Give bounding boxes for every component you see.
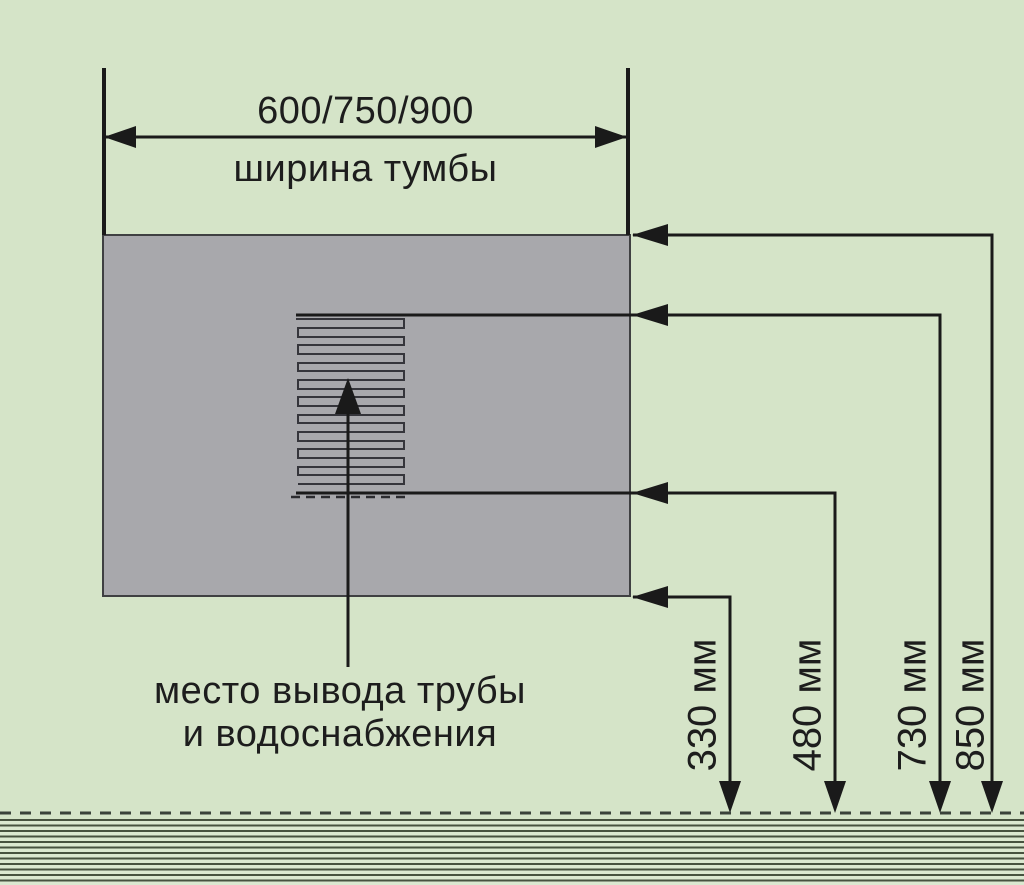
cabinet-width-label: ширина тумбы (103, 148, 628, 191)
dim-label-850: 850 мм (949, 639, 994, 772)
diagram-canvas: 600/750/900 ширина тумбы место вывода тр… (0, 0, 1024, 885)
leader-330-left-arrow-icon (632, 586, 668, 608)
outlet-note: место вывода трубы и водоснабжения (90, 670, 590, 755)
dim-label-330: 330 мм (681, 639, 726, 772)
cabinet-width-values: 600/750/900 (103, 90, 628, 133)
leader-850-left-arrow-icon (632, 224, 668, 246)
outlet-note-line2: и водоснабжения (183, 713, 497, 755)
leader-730-down-arrow-icon (929, 781, 951, 813)
leader-480-down-arrow-icon (824, 781, 846, 813)
outlet-note-line1: место вывода трубы (154, 670, 526, 712)
leader-480-left-arrow-icon (632, 482, 668, 504)
dim-label-730: 730 мм (891, 639, 936, 772)
leader-850-down-arrow-icon (981, 781, 1003, 813)
leader-330-down-arrow-icon (719, 781, 741, 813)
floor-stripes (0, 819, 1024, 885)
dim-label-480: 480 мм (786, 639, 831, 772)
leader-730-left-arrow-icon (632, 304, 668, 326)
